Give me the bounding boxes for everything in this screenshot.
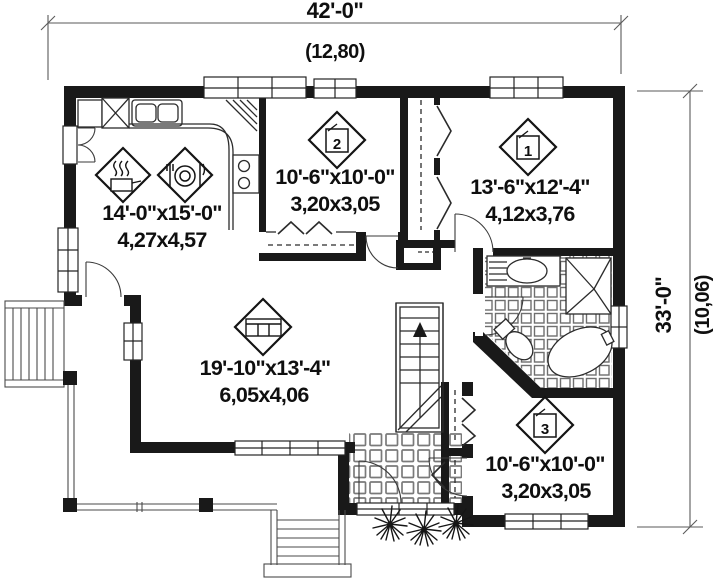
corner-cabinet: [102, 98, 129, 128]
bedroom2-window: [314, 79, 356, 98]
shower: [566, 258, 611, 314]
bedroom3-size-metric: 3,20x3,05: [501, 479, 591, 503]
living-front-windows: [235, 441, 345, 455]
kitchen-sink: [132, 100, 182, 126]
height-metric-label: (10,06): [692, 275, 714, 335]
bedroom3-window: [505, 514, 588, 529]
dining-icon: [158, 148, 212, 202]
bedroom1-window: [490, 77, 563, 98]
kitchen-size-imperial: 14'-0"x15'-0": [102, 201, 222, 225]
sofa-icon: [235, 299, 291, 355]
height-imperial-label: 33'-0": [651, 277, 676, 334]
bedroom1-closet-bifold: [437, 106, 451, 156]
bedroom3-icon: 3: [517, 397, 573, 453]
bedroom1-size-imperial: 13'-6"x12'-4": [470, 175, 590, 199]
kitchen-window: [204, 77, 306, 98]
bedroom2-closet-bifold: [278, 222, 304, 234]
bedroom1-icon: 1: [500, 119, 556, 175]
bedroom1-number: 1: [524, 143, 532, 160]
width-imperial-label: 42'-0": [307, 0, 364, 23]
living-size-metric: 6,05x4,06: [219, 383, 309, 407]
porch-post: [199, 498, 213, 512]
bedroom3-number: 3: [541, 421, 549, 438]
porch-steps: [264, 510, 351, 577]
side-deck: [5, 301, 64, 387]
bedroom1-closet-bifold: [437, 177, 451, 229]
bath-door-opening: [475, 294, 483, 336]
kitchen-side-window: [58, 228, 78, 292]
cooking-icon: [96, 148, 150, 202]
floor-plan: 42'-0" (12,80) 33'-0" (10,06): [0, 0, 720, 583]
side-door-opening: [82, 294, 124, 307]
staircase: [396, 303, 443, 432]
kitchen-size-metric: 4,27x4,57: [117, 228, 207, 252]
bedroom2-size-metric: 3,20x3,05: [290, 192, 380, 216]
dimension-top: 42'-0" (12,80): [41, 0, 628, 80]
bedroom2-door: [366, 236, 398, 268]
living-side-window: [124, 323, 142, 360]
width-metric-label: (12,80): [305, 41, 365, 63]
stove: [233, 155, 259, 193]
front-door-sidelights: [357, 503, 454, 515]
side-door: [86, 262, 121, 297]
dimension-right: 33'-0" (10,06): [637, 84, 714, 534]
bush-icon: [407, 511, 441, 546]
vanity-sink: [487, 256, 560, 286]
porch-post: [63, 371, 77, 385]
porch: [5, 301, 351, 577]
pantry-opening: [63, 126, 77, 164]
bedroom2-size-imperial: 10'-6"x10'-0": [275, 165, 395, 189]
bedroom2-closet-bifold: [306, 222, 332, 234]
refrigerator: [78, 100, 102, 127]
bedroom1-size-metric: 4,12x3,76: [485, 202, 575, 226]
living-size-imperial: 19'-10"x13'-4": [200, 356, 331, 380]
bedroom2-number: 2: [333, 136, 341, 153]
bedroom3-size-imperial: 10'-6"x10'-0": [485, 452, 605, 476]
bedroom2-icon: 2: [309, 112, 365, 168]
porch-post: [63, 498, 77, 512]
bed3-door-opening: [462, 458, 473, 496]
pantry-doors: [78, 128, 95, 162]
